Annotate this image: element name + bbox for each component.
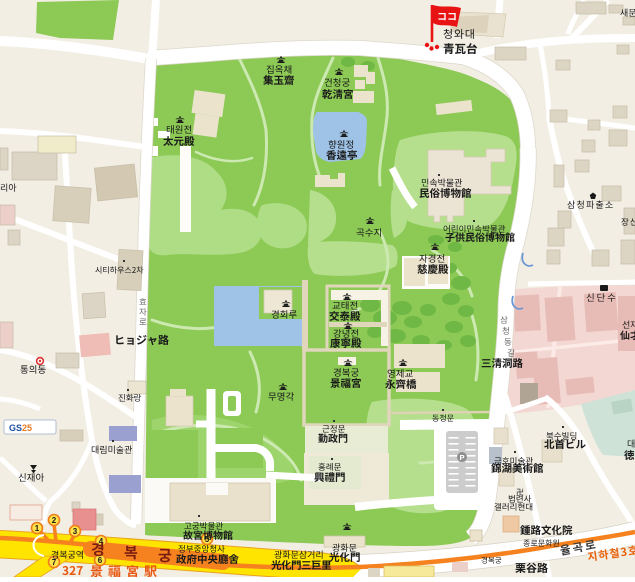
svg-text:P: P <box>459 453 464 462</box>
svg-text:6: 6 <box>98 556 103 565</box>
svg-text:7: 7 <box>52 558 57 567</box>
svg-text:2: 2 <box>52 516 57 525</box>
svg-text:GS25: GS25 <box>9 423 32 433</box>
svg-text:1: 1 <box>35 524 40 533</box>
svg-text:3: 3 <box>73 527 78 536</box>
